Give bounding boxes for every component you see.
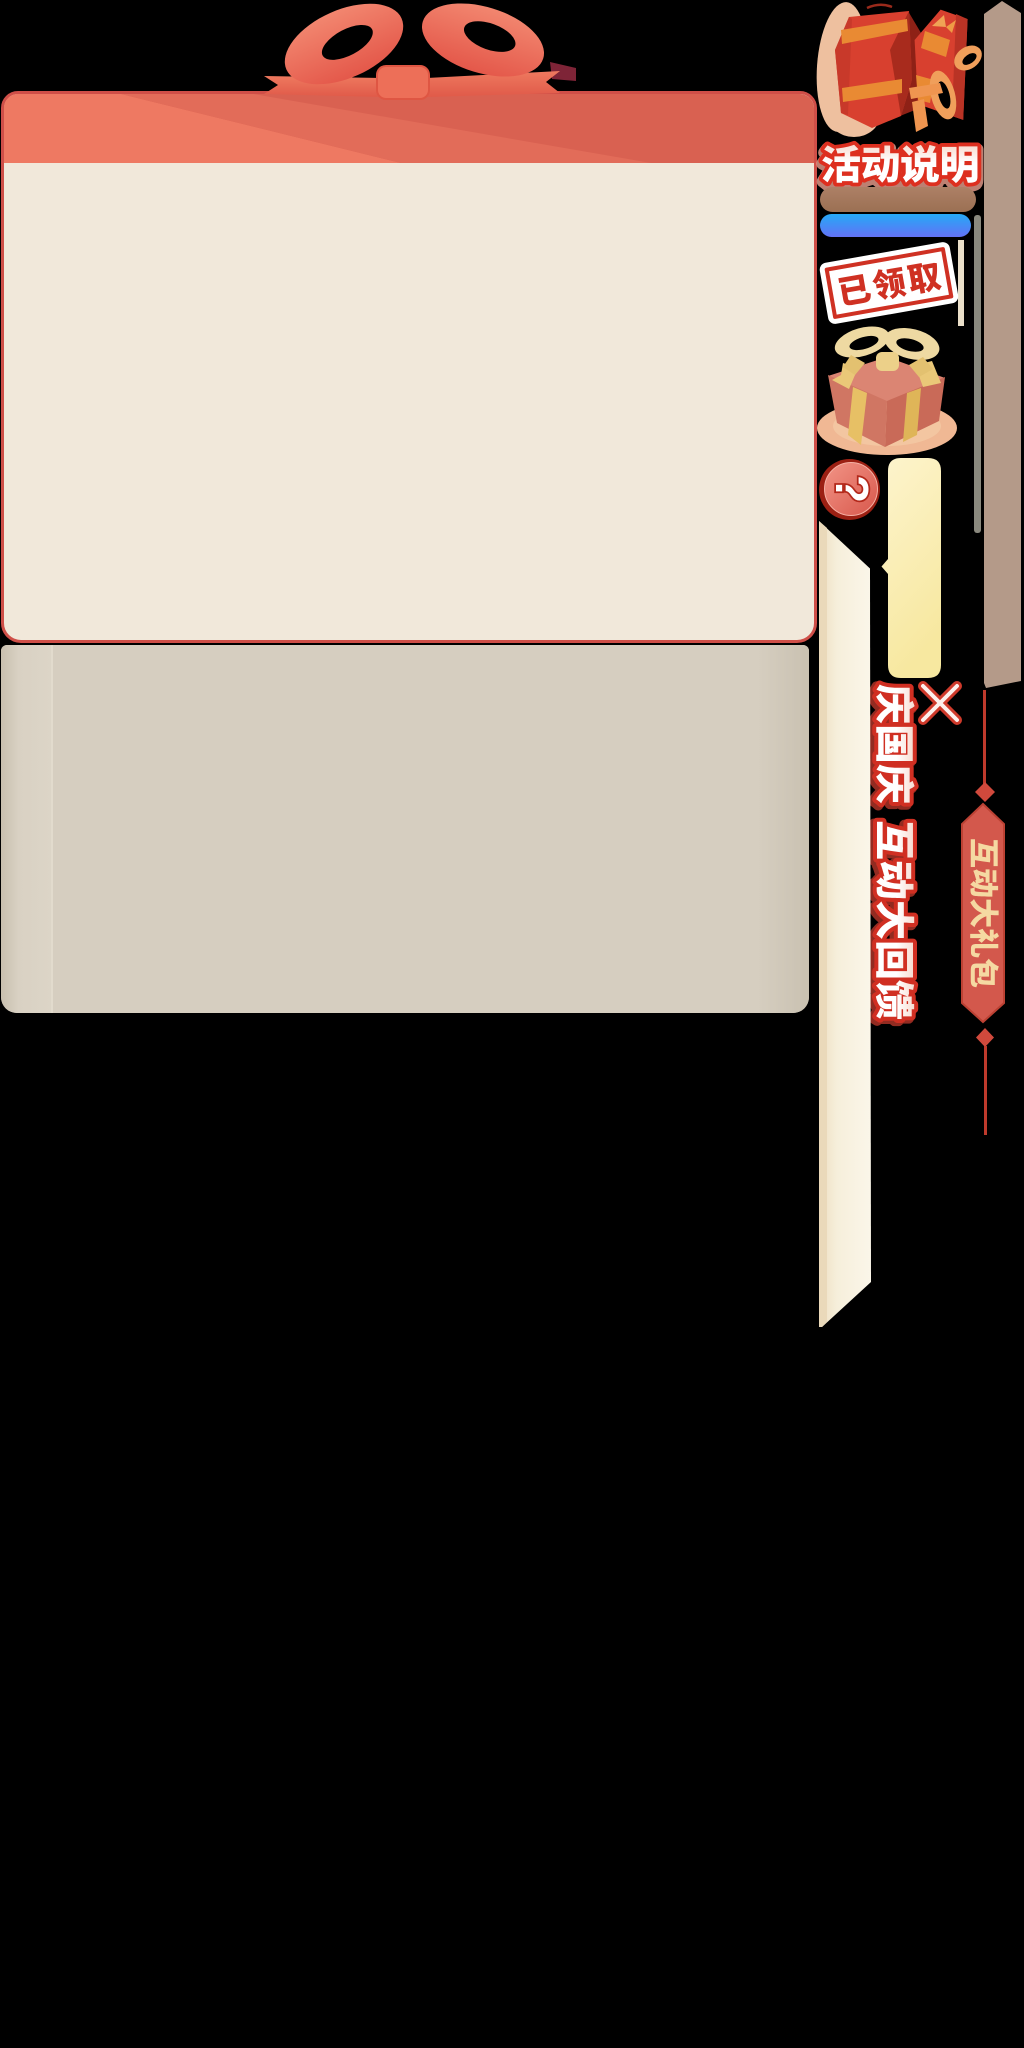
svg-text:?: ? <box>826 475 878 503</box>
